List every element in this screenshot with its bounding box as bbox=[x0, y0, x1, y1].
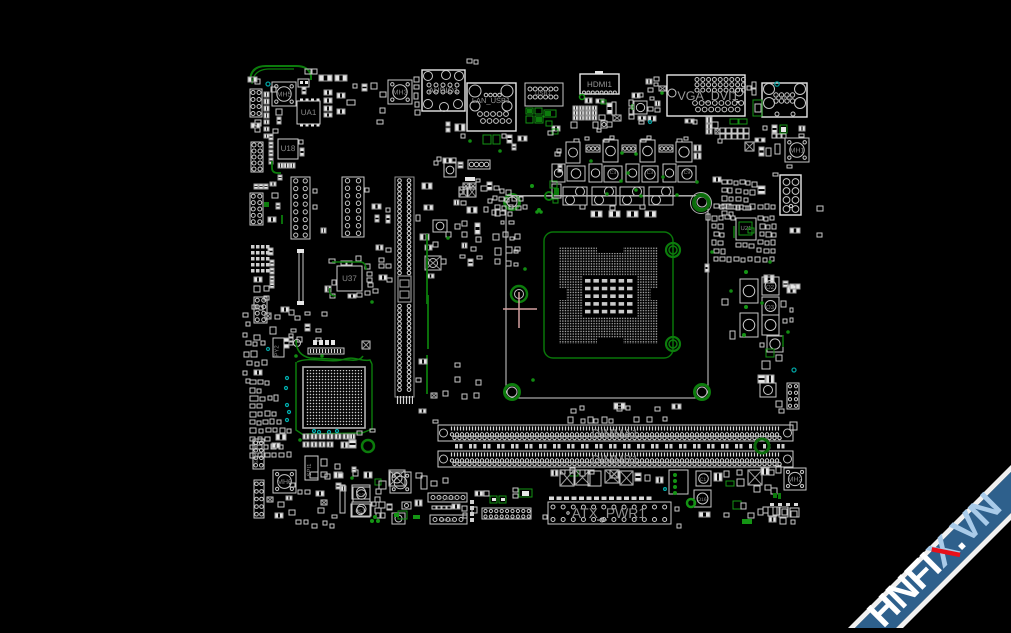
svg-text:O3: O3 bbox=[766, 304, 775, 311]
svg-text:U37: U37 bbox=[342, 274, 357, 283]
svg-text:O16: O16 bbox=[697, 497, 707, 503]
svg-text:MH1: MH1 bbox=[790, 148, 805, 155]
svg-text:SATA1: SATA1 bbox=[254, 448, 260, 463]
svg-text:DIMMB1: DIMMB1 bbox=[592, 453, 639, 467]
svg-text:C3: C3 bbox=[610, 170, 617, 176]
svg-text:U18: U18 bbox=[281, 144, 296, 153]
svg-text:C1: C1 bbox=[700, 477, 707, 483]
svg-text:C3: C3 bbox=[647, 170, 654, 176]
svg-text:C3: C3 bbox=[358, 493, 365, 499]
svg-text:USB1: USB1 bbox=[535, 90, 551, 97]
svg-text:UA1: UA1 bbox=[301, 108, 317, 117]
svg-text:HDMI1: HDMI1 bbox=[587, 80, 612, 89]
svg-text:O2: O2 bbox=[766, 284, 775, 291]
svg-text:F_AUD: F_AUD bbox=[439, 496, 456, 502]
svg-text:AUDIO1: AUDIO1 bbox=[429, 86, 459, 95]
svg-text:C9: C9 bbox=[684, 170, 691, 176]
svg-text:MH3: MH3 bbox=[393, 90, 408, 97]
svg-text:U57: U57 bbox=[355, 509, 364, 515]
svg-text:PANEL: PANEL bbox=[440, 518, 456, 524]
svg-text:ATX_PWR1: ATX_PWR1 bbox=[572, 505, 647, 521]
svg-text:LAN_USB1: LAN_USB1 bbox=[472, 96, 510, 105]
svg-text:MH2: MH2 bbox=[788, 477, 803, 484]
svg-text:MH5: MH5 bbox=[277, 92, 292, 99]
svg-text:SPI1: SPI1 bbox=[306, 463, 313, 477]
svg-text:LAN2: LAN2 bbox=[776, 95, 793, 102]
svg-text:PY2: PY2 bbox=[274, 345, 281, 357]
svg-text:DIMMA1: DIMMA1 bbox=[592, 427, 639, 441]
